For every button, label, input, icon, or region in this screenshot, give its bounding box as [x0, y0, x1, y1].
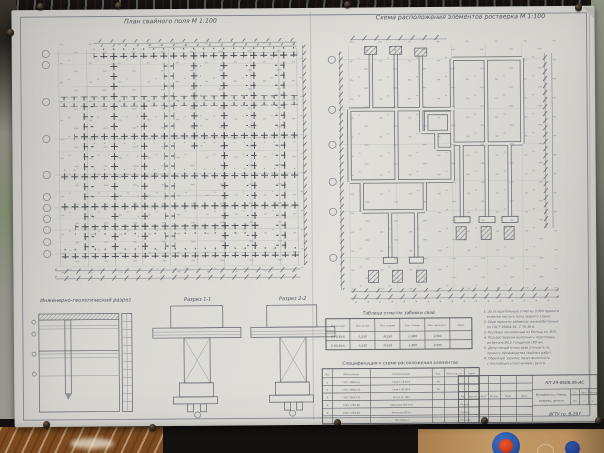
stamp-col-izm: Изм. — [461, 395, 467, 398]
geo-section-drawing — [32, 313, 133, 412]
stamp-stage-label: Ст. — [573, 391, 577, 394]
note-line: с послойным уплотнением грунта. — [487, 361, 546, 365]
spec-th-1: Обозначение — [343, 373, 360, 376]
left-plan-title: План свайного поля М 1:100 — [124, 18, 217, 26]
grillage-plan — [328, 34, 561, 303]
note-line: по ГОСТ 19804-91, С 70.30-6. — [487, 325, 535, 329]
svg-text:3: 3 — [327, 397, 329, 400]
pin-bottom-5 — [595, 417, 602, 424]
stamp-col-list: Лист — [480, 395, 487, 398]
note-line: 1. За относительную отметку 0,000 принят… — [484, 309, 559, 314]
spec-table-row: Материалы — [395, 419, 409, 422]
pin-top-2 — [115, 2, 122, 9]
svg-text:-1,550: -1,550 — [358, 335, 367, 339]
geo-section-title: Инженерно-геологический разрез — [40, 297, 131, 304]
spec-table-row: 4 ГОСТ 5781-82 Арматура Ø12 А-III — [327, 403, 413, 407]
specification-table: Спецификация к схеме расположения элемен… — [322, 360, 479, 424]
stamp-col-dok: № док. — [490, 395, 499, 398]
note-line: отметка чистого пола первого этажа. — [487, 314, 551, 319]
pile-th-2: Отм. острия — [380, 324, 395, 327]
svg-text:-9,550: -9,550 — [383, 343, 392, 347]
section-11-title: Разрез 1-1 — [184, 297, 211, 303]
svg-text:Бетон кл. В15: Бетон кл. В15 — [393, 396, 410, 399]
svg-text:ГОСТ 5781-82: ГОСТ 5781-82 — [343, 404, 360, 407]
pin-top-1 — [37, 3, 44, 10]
pile-elevation-table: Таблица отметок забивки свай Марка сваи … — [326, 310, 472, 350]
svg-text:ГОСТ 26633-91: ГОСТ 26633-91 — [342, 396, 361, 399]
spec-table-row: 3 ГОСТ 26633-91 Бетон кл. В15 — [327, 396, 411, 400]
note-line: 5. Допустимый отказ сваи уточнить по — [484, 345, 550, 350]
magnet-small-blue — [565, 441, 580, 453]
pile-th-0: Марка сваи — [331, 325, 345, 328]
axis-bubbles-right-plan — [328, 56, 337, 261]
svg-text:Арматура Ø6 А-I: Арматура Ø6 А-I — [392, 411, 412, 414]
pin-left — [7, 29, 14, 36]
svg-text:ГОСТ 19804-91: ГОСТ 19804-91 — [342, 381, 361, 384]
note-line: 6. Обратную засыпку пазух выполнить — [484, 356, 550, 361]
svg-text:64: 64 — [437, 380, 440, 383]
svg-text:1: 1 — [327, 381, 329, 384]
axis-bubbles-left-plan — [42, 50, 51, 257]
pile-table-row: С 80.30-6 -1,550 -9,550 -1,900 -2,050 — [331, 343, 442, 348]
pile-th-5: Прим. — [457, 324, 464, 327]
stamp-role-nkontr: Н.контр. — [461, 419, 472, 422]
spec-table-row: 1 ГОСТ 19804-91 Свая С 70.30-6 64 — [327, 380, 441, 384]
stamp-role-razrab: Разраб. — [460, 403, 469, 406]
spec-table-row: 5 ГОСТ 5781-82 Арматура Ø6 А-I — [327, 411, 412, 415]
stamp-sheets-label: Листов — [589, 391, 598, 394]
svg-text:ГОСТ 19804-91: ГОСТ 19804-91 — [342, 389, 361, 392]
stamp-subject-2: разрезы, детали — [539, 398, 564, 402]
pin-top-4 — [575, 4, 582, 11]
svg-text:4: 4 — [327, 404, 329, 407]
magnet-faint-ring — [537, 444, 554, 453]
pin-bottom-3 — [334, 419, 341, 426]
spec-th-2: Наименование — [392, 373, 410, 376]
magnet-red-core — [499, 439, 513, 453]
photo-scene: План свайного поля М 1:100 Схема располо… — [0, 0, 604, 453]
note-line: 2. Сваи приняты забивные железобетонные — [484, 319, 559, 324]
pin-bottom-2 — [149, 424, 156, 431]
pin-top-3 — [344, 1, 351, 8]
svg-text:-2,050: -2,050 — [433, 334, 442, 338]
pile-th-4: Отм. низа рост. — [428, 324, 447, 327]
blueprint-sheet: План свайного поля М 1:100 Схема располо… — [11, 6, 597, 428]
stamp-col-data: Дата — [521, 395, 528, 398]
svg-text:ГОСТ 5781-82: ГОСТ 5781-82 — [343, 412, 360, 415]
svg-text:-8,550: -8,550 — [383, 334, 392, 338]
spec-th-0: Поз. — [325, 373, 330, 376]
svg-text:С 80.30-6: С 80.30-6 — [331, 344, 345, 348]
pin-bottom-4 — [481, 417, 488, 424]
stamp-code: КП 29-0608.06-АС — [545, 380, 584, 385]
svg-text:2: 2 — [327, 389, 329, 392]
svg-text:Материалы: Материалы — [395, 419, 409, 422]
spec-table-title: Спецификация к схеме расположения элемен… — [342, 360, 458, 367]
stamp-org: ВГТУ гр. В-297 — [549, 411, 581, 416]
svg-text:-2,050: -2,050 — [433, 343, 442, 347]
pile-table-row: С 70.30-6 -1,550 -8,550 -1,900 -2,050 — [331, 334, 442, 339]
svg-text:Свая С 70.30-6: Свая С 70.30-6 — [392, 381, 410, 384]
svg-text:-1,900: -1,900 — [408, 334, 417, 338]
svg-text:-1,550: -1,550 — [358, 344, 367, 348]
magnet-blue-red — [492, 432, 520, 453]
pile-th-1: Отм. устья — [356, 324, 370, 327]
svg-text:С 70.30-6: С 70.30-6 — [331, 335, 345, 339]
spec-th-3: Кол. — [436, 372, 442, 375]
section-22-title: Разрез 2-2 — [279, 296, 306, 302]
spec-th-5: Прим. — [468, 372, 475, 375]
section-11-drawing — [153, 306, 242, 419]
stamp-stage-value: КП — [573, 400, 577, 403]
pile-field-plan — [42, 38, 308, 283]
spec-table-row: 2 ГОСТ 19804-91 Свая С 80.30-6 26 — [327, 388, 441, 392]
note-line: проекту производства свайных работ. — [487, 351, 552, 356]
stamp-subject-1: Фундаменты. Планы, — [536, 392, 567, 396]
stamp-sheets-value: 1 — [592, 400, 594, 403]
pile-th-3: Отм. головы — [405, 324, 420, 327]
stamp-col-koluch: Кол.уч. — [469, 395, 478, 398]
svg-text:26: 26 — [437, 388, 440, 391]
svg-text:5: 5 — [327, 412, 329, 415]
svg-text:Арматура Ø12 А-III: Арматура Ø12 А-III — [390, 403, 413, 406]
right-plan-title: Схема расположения элементов ростверка М… — [376, 13, 546, 21]
note-line: 3. Ростверк монолитный из бетона кл. В15… — [484, 330, 557, 335]
sheet-drawing: План свайного поля М 1:100 Схема располо… — [11, 6, 597, 428]
stamp-col-podp: Подп. — [505, 395, 512, 398]
note-line: 4. Под ростверком выполнить подготовку — [484, 335, 555, 340]
stamp-sheet-label: Лист — [581, 391, 588, 394]
stamp-role-prover: Провер. — [461, 411, 471, 414]
stamp-sheet-value: 1 — [583, 400, 585, 403]
note-line: из бетона В3,5 толщиной 100 мм. — [487, 340, 544, 344]
svg-text:Свая С 80.30-6: Свая С 80.30-6 — [393, 388, 411, 391]
pile-table-title: Таблица отметок забивки свай — [363, 310, 435, 317]
paint-smear — [70, 438, 114, 449]
pin-bottom-1 — [43, 421, 50, 428]
notes-block: 1. За относительную отметку 0,000 принят… — [484, 309, 560, 366]
svg-text:-1,900: -1,900 — [408, 343, 417, 347]
spec-th-4: Масса ед., кг — [446, 372, 463, 375]
